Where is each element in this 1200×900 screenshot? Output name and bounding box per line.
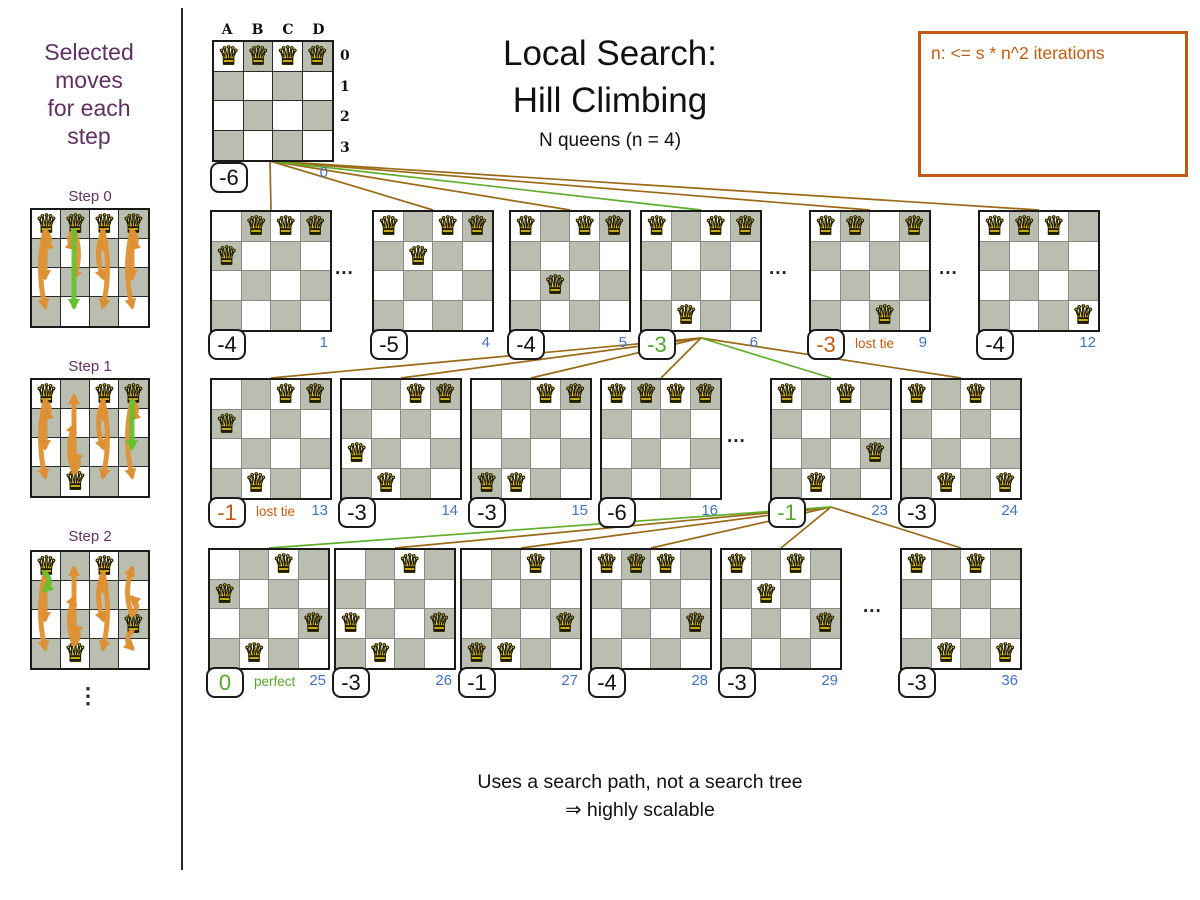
- row-label: 1: [340, 79, 350, 95]
- queen-icon: ♛: [463, 212, 493, 242]
- move-arrow: [103, 401, 108, 476]
- board-cell: [932, 380, 962, 410]
- board-cell: [831, 469, 861, 499]
- board-cell: [269, 580, 299, 610]
- queen-icon: ♛: [672, 301, 702, 331]
- board-cell: [366, 580, 396, 610]
- board-cell: [772, 439, 802, 469]
- board-cell: [269, 639, 299, 669]
- board-cell: [900, 271, 930, 301]
- queen-icon: ♛: [214, 42, 244, 72]
- board-cell: [661, 469, 691, 499]
- board-cell: [861, 380, 891, 410]
- candidate-board: ♛♛♛♛: [334, 548, 456, 670]
- score-tag: lost tie: [855, 336, 894, 351]
- candidate-board: ♛♛♛♛: [460, 548, 582, 670]
- board-cell: [301, 410, 331, 440]
- board-cell: [752, 609, 782, 639]
- board-cell: [212, 271, 242, 301]
- move-arrow: [103, 573, 108, 648]
- queen-icon: ♛: [431, 380, 461, 410]
- board-cell: [570, 271, 600, 301]
- board-cell: [681, 550, 711, 580]
- queen-icon: ♛: [980, 212, 1010, 242]
- boards-ellipsis: ...: [939, 258, 958, 280]
- board-cell: [722, 639, 752, 669]
- board-cell: [240, 580, 270, 610]
- board-cell: [722, 609, 752, 639]
- board-cell: [991, 380, 1021, 410]
- queen-icon: ♛: [870, 301, 900, 331]
- board-cell: [811, 271, 841, 301]
- column-label: A: [212, 22, 242, 38]
- board-cell: [870, 242, 900, 272]
- board-cell: [632, 439, 662, 469]
- board-cell: [301, 469, 331, 499]
- board-cell: [336, 550, 366, 580]
- board-cell: [902, 439, 932, 469]
- row-label: 3: [340, 140, 350, 156]
- board-cell: [600, 242, 630, 272]
- board-cell: [492, 550, 522, 580]
- board-cell: [463, 301, 493, 331]
- board-cell: [902, 469, 932, 499]
- board-cell: [462, 580, 492, 610]
- score-badge: -3: [332, 667, 370, 698]
- boards-ellipsis: ...: [727, 426, 746, 448]
- queen-icon: ♛: [242, 469, 272, 499]
- move-arrowhead: [68, 565, 80, 576]
- candidate-board: ♛♛♛♛: [900, 378, 1022, 500]
- queen-icon: ♛: [622, 550, 652, 580]
- move-arrowhead: [68, 393, 80, 404]
- boards-ellipsis: ...: [335, 258, 354, 280]
- board-cell: [870, 212, 900, 242]
- board-cell: [841, 271, 871, 301]
- board-cell: [273, 101, 303, 131]
- queen-icon: ♛: [271, 212, 301, 242]
- board-cell: [811, 301, 841, 331]
- board-cell: [303, 131, 333, 161]
- board-cell: [961, 410, 991, 440]
- column-label: C: [273, 22, 303, 38]
- score-badge: -5: [370, 329, 408, 360]
- queen-icon: ♛: [502, 469, 532, 499]
- board-cell: [902, 580, 932, 610]
- board-cell: [592, 580, 622, 610]
- board-cell: [980, 242, 1010, 272]
- board-cell: [661, 410, 691, 440]
- score-tag: lost tie: [256, 504, 295, 519]
- score-badge: -3: [468, 497, 506, 528]
- board-cell: [433, 242, 463, 272]
- queen-icon: ♛: [602, 380, 632, 410]
- queen-icon: ♛: [991, 639, 1021, 669]
- queen-icon: ♛: [372, 469, 402, 499]
- queen-icon: ♛: [212, 242, 242, 272]
- board-cell: [861, 410, 891, 440]
- board-cell: [492, 609, 522, 639]
- board-cell: [463, 242, 493, 272]
- board-cell: [301, 301, 331, 331]
- board-cell: [431, 439, 461, 469]
- board-cell: [731, 242, 761, 272]
- board-cell: [731, 301, 761, 331]
- board-cell: [980, 271, 1010, 301]
- candidate-board: ♛♛♛♛: [900, 548, 1022, 670]
- board-cell: [691, 410, 721, 440]
- board-cell: [425, 639, 455, 669]
- queen-icon: ♛: [932, 469, 962, 499]
- board-cell: [932, 580, 962, 610]
- board-cell: [521, 609, 551, 639]
- board-cell: [242, 380, 272, 410]
- queen-icon: ♛: [472, 469, 502, 499]
- board-cell: [672, 212, 702, 242]
- board-cell: [802, 380, 832, 410]
- queen-icon: ♛: [366, 639, 396, 669]
- queen-icon: ♛: [212, 410, 242, 440]
- board-cell: [271, 469, 301, 499]
- board-cell: [492, 580, 522, 610]
- queen-icon: ♛: [240, 639, 270, 669]
- board-cell: [592, 639, 622, 669]
- board-cell: [902, 410, 932, 440]
- board-cell: [472, 410, 502, 440]
- board-cell: [902, 609, 932, 639]
- queen-icon: ♛: [961, 550, 991, 580]
- board-cell: [961, 439, 991, 469]
- board-cell: [932, 550, 962, 580]
- board-cell: [602, 469, 632, 499]
- board-cell: [642, 271, 672, 301]
- board-cell: [210, 609, 240, 639]
- move-arrowhead: [38, 468, 50, 480]
- board-cell: [401, 469, 431, 499]
- queen-icon: ♛: [269, 550, 299, 580]
- queen-icon: ♛: [781, 550, 811, 580]
- board-cell: [511, 271, 541, 301]
- board-cell: [271, 410, 301, 440]
- board-cell: [342, 380, 372, 410]
- board-cell: [273, 131, 303, 161]
- move-arrowhead: [38, 640, 50, 652]
- board-cell: [632, 410, 662, 440]
- queen-icon: ♛: [932, 639, 962, 669]
- board-cell: [900, 301, 930, 331]
- board-cell: [299, 550, 329, 580]
- board-cell: [433, 301, 463, 331]
- board-cell: [395, 609, 425, 639]
- move-arrowhead: [99, 298, 111, 310]
- board-cell: [561, 410, 591, 440]
- queen-icon: ♛: [1069, 301, 1099, 331]
- board-cell: [642, 242, 672, 272]
- board-cell: [462, 550, 492, 580]
- queen-icon: ♛: [701, 212, 731, 242]
- board-cell: [463, 271, 493, 301]
- board-cell: [991, 410, 1021, 440]
- queen-icon: ♛: [462, 639, 492, 669]
- board-cell: [472, 439, 502, 469]
- board-cell: [900, 242, 930, 272]
- board-cell: [632, 469, 662, 499]
- board-cell: [404, 301, 434, 331]
- board-cell: [366, 609, 396, 639]
- queen-icon: ♛: [811, 609, 841, 639]
- board-cell: [242, 410, 272, 440]
- board-cell: [271, 301, 301, 331]
- queen-icon: ♛: [303, 42, 333, 72]
- board-cell: [1069, 212, 1099, 242]
- candidate-board: ♛♛♛♛: [590, 548, 712, 670]
- score-badge: -1: [458, 667, 496, 698]
- candidate-board: ♛♛♛♛: [210, 210, 332, 332]
- board-cell: [374, 242, 404, 272]
- move-arrow: [103, 231, 108, 306]
- board-cell: [772, 469, 802, 499]
- board-cell: [271, 271, 301, 301]
- board-cell: [831, 410, 861, 440]
- board-cell: [425, 550, 455, 580]
- candidate-board: ♛♛♛♛: [720, 548, 842, 670]
- board-cell: [622, 639, 652, 669]
- board-cell: [811, 580, 841, 610]
- queen-icon: ♛: [541, 271, 571, 301]
- queen-icon: ♛: [752, 580, 782, 610]
- board-cell: [425, 580, 455, 610]
- score-badge: -4: [588, 667, 626, 698]
- board-cell: [212, 212, 242, 242]
- queen-icon: ♛: [991, 469, 1021, 499]
- board-cell: [210, 550, 240, 580]
- boards-ellipsis: ...: [769, 258, 788, 280]
- board-cell: [462, 609, 492, 639]
- board-cell: [210, 639, 240, 669]
- board-cell: [991, 439, 1021, 469]
- board-cell: [214, 101, 244, 131]
- board-cell: [752, 639, 782, 669]
- board-cell: [991, 550, 1021, 580]
- board-cell: [651, 609, 681, 639]
- queen-icon: ♛: [299, 609, 329, 639]
- board-cell: [551, 550, 581, 580]
- score-badge: -3: [718, 667, 756, 698]
- score-badge: -3: [898, 667, 936, 698]
- score-badge: -6: [598, 497, 636, 528]
- board-cell: [811, 639, 841, 669]
- board-cell: [1039, 301, 1069, 331]
- board-cell: [212, 301, 242, 331]
- queen-icon: ♛: [632, 380, 662, 410]
- board-cell: [841, 301, 871, 331]
- board-cell: [511, 242, 541, 272]
- queen-icon: ♛: [395, 550, 425, 580]
- board-cell: [404, 212, 434, 242]
- move-arrowhead: [38, 298, 50, 310]
- board-cell: [622, 580, 652, 610]
- root-board: ♛♛♛♛: [212, 40, 334, 162]
- connector-line: [270, 161, 701, 210]
- candidate-board: ♛♛♛♛: [978, 210, 1100, 332]
- queen-icon: ♛: [811, 212, 841, 242]
- board-cell: [242, 271, 272, 301]
- board-cell: [342, 469, 372, 499]
- queen-icon: ♛: [433, 212, 463, 242]
- board-cell: [240, 550, 270, 580]
- board-cell: [1010, 242, 1040, 272]
- board-cell: [212, 469, 242, 499]
- move-arrowhead: [125, 298, 137, 310]
- board-cell: [602, 410, 632, 440]
- board-cell: [301, 439, 331, 469]
- board-cell: [299, 580, 329, 610]
- board-cell: [932, 609, 962, 639]
- board-cell: [551, 580, 581, 610]
- board-cell: [681, 639, 711, 669]
- board-cell: [404, 271, 434, 301]
- connector-line: [270, 161, 1039, 210]
- board-cell: [961, 469, 991, 499]
- board-cell: [502, 380, 532, 410]
- board-cell: [401, 439, 431, 469]
- queen-icon: ♛: [425, 609, 455, 639]
- queen-icon: ♛: [861, 439, 891, 469]
- board-cell: [521, 580, 551, 610]
- queen-icon: ♛: [902, 380, 932, 410]
- board-cell: [1010, 301, 1040, 331]
- queen-icon: ♛: [301, 212, 331, 242]
- board-cell: [521, 639, 551, 669]
- board-cell: [672, 271, 702, 301]
- board-cell: [600, 271, 630, 301]
- board-cell: [541, 301, 571, 331]
- board-cell: [841, 242, 871, 272]
- board-cell: [242, 301, 272, 331]
- score-tag: perfect: [254, 674, 295, 689]
- board-cell: [301, 271, 331, 301]
- queen-icon: ♛: [722, 550, 752, 580]
- board-cell: [731, 271, 761, 301]
- candidate-board: ♛♛♛♛: [809, 210, 931, 332]
- row-label: 0: [340, 48, 350, 64]
- queen-icon: ♛: [661, 380, 691, 410]
- queen-icon: ♛: [592, 550, 622, 580]
- board-cell: [242, 439, 272, 469]
- board-cell: [661, 439, 691, 469]
- board-cell: [401, 410, 431, 440]
- score-badge: -4: [208, 329, 246, 360]
- board-cell: [802, 439, 832, 469]
- queen-icon: ♛: [570, 212, 600, 242]
- board-cell: [502, 410, 532, 440]
- queen-icon: ♛: [336, 609, 366, 639]
- score-badge: -4: [507, 329, 545, 360]
- queen-icon: ♛: [531, 380, 561, 410]
- board-cell: [861, 469, 891, 499]
- board-cell: [431, 469, 461, 499]
- boards-ellipsis: ...: [863, 596, 882, 618]
- board-cell: [961, 580, 991, 610]
- board-cell: [336, 580, 366, 610]
- board-cell: [372, 410, 402, 440]
- board-cell: [531, 439, 561, 469]
- move-arrowhead: [125, 468, 137, 480]
- step-move-arrows: [30, 378, 150, 498]
- board-cell: [622, 609, 652, 639]
- score-badge: -3: [338, 497, 376, 528]
- column-label: B: [243, 22, 273, 38]
- board-cell: [561, 439, 591, 469]
- board-cell: [991, 580, 1021, 610]
- queen-icon: ♛: [600, 212, 630, 242]
- board-cell: [1010, 271, 1040, 301]
- queen-icon: ♛: [900, 212, 930, 242]
- board-cell: [551, 639, 581, 669]
- board-cell: [722, 580, 752, 610]
- candidate-board: ♛♛♛♛: [470, 378, 592, 500]
- board-cell: [672, 242, 702, 272]
- queen-icon: ♛: [651, 550, 681, 580]
- board-cell: [681, 580, 711, 610]
- connector-line: [270, 161, 870, 210]
- score-badge: -1: [768, 497, 806, 528]
- board-cell: [991, 609, 1021, 639]
- move-arrowhead: [68, 299, 80, 310]
- queen-icon: ♛: [401, 380, 431, 410]
- board-cell: [811, 242, 841, 272]
- queen-icon: ♛: [511, 212, 541, 242]
- board-cell: [570, 301, 600, 331]
- board-cell: [592, 609, 622, 639]
- board-cell: [691, 439, 721, 469]
- board-cell: [372, 380, 402, 410]
- board-cell: [781, 580, 811, 610]
- board-cell: [570, 242, 600, 272]
- board-cell: [242, 242, 272, 272]
- step-move-arrows: [30, 208, 150, 328]
- board-cell: [651, 580, 681, 610]
- board-cell: [212, 380, 242, 410]
- board-cell: [374, 301, 404, 331]
- board-cell: [752, 550, 782, 580]
- queen-icon: ♛: [961, 380, 991, 410]
- board-cell: [932, 410, 962, 440]
- board-cell: [802, 410, 832, 440]
- queen-icon: ♛: [404, 242, 434, 272]
- board-cell: [531, 410, 561, 440]
- score-badge: -1: [208, 497, 246, 528]
- board-cell: [212, 439, 242, 469]
- candidate-board: ♛♛♛♛: [770, 378, 892, 500]
- queen-icon: ♛: [210, 580, 240, 610]
- queen-icon: ♛: [551, 609, 581, 639]
- board-cell: [433, 271, 463, 301]
- candidate-board: ♛♛♛♛: [340, 378, 462, 500]
- move-arrowhead: [99, 640, 111, 652]
- board-cell: [781, 609, 811, 639]
- board-cell: [541, 242, 571, 272]
- board-cell: [502, 439, 532, 469]
- board-cell: [1039, 242, 1069, 272]
- board-cell: [772, 410, 802, 440]
- board-cell: [214, 131, 244, 161]
- queen-icon: ♛: [492, 639, 522, 669]
- queen-icon: ♛: [1010, 212, 1040, 242]
- board-cell: [811, 550, 841, 580]
- board-cell: [870, 271, 900, 301]
- board-cell: [244, 101, 274, 131]
